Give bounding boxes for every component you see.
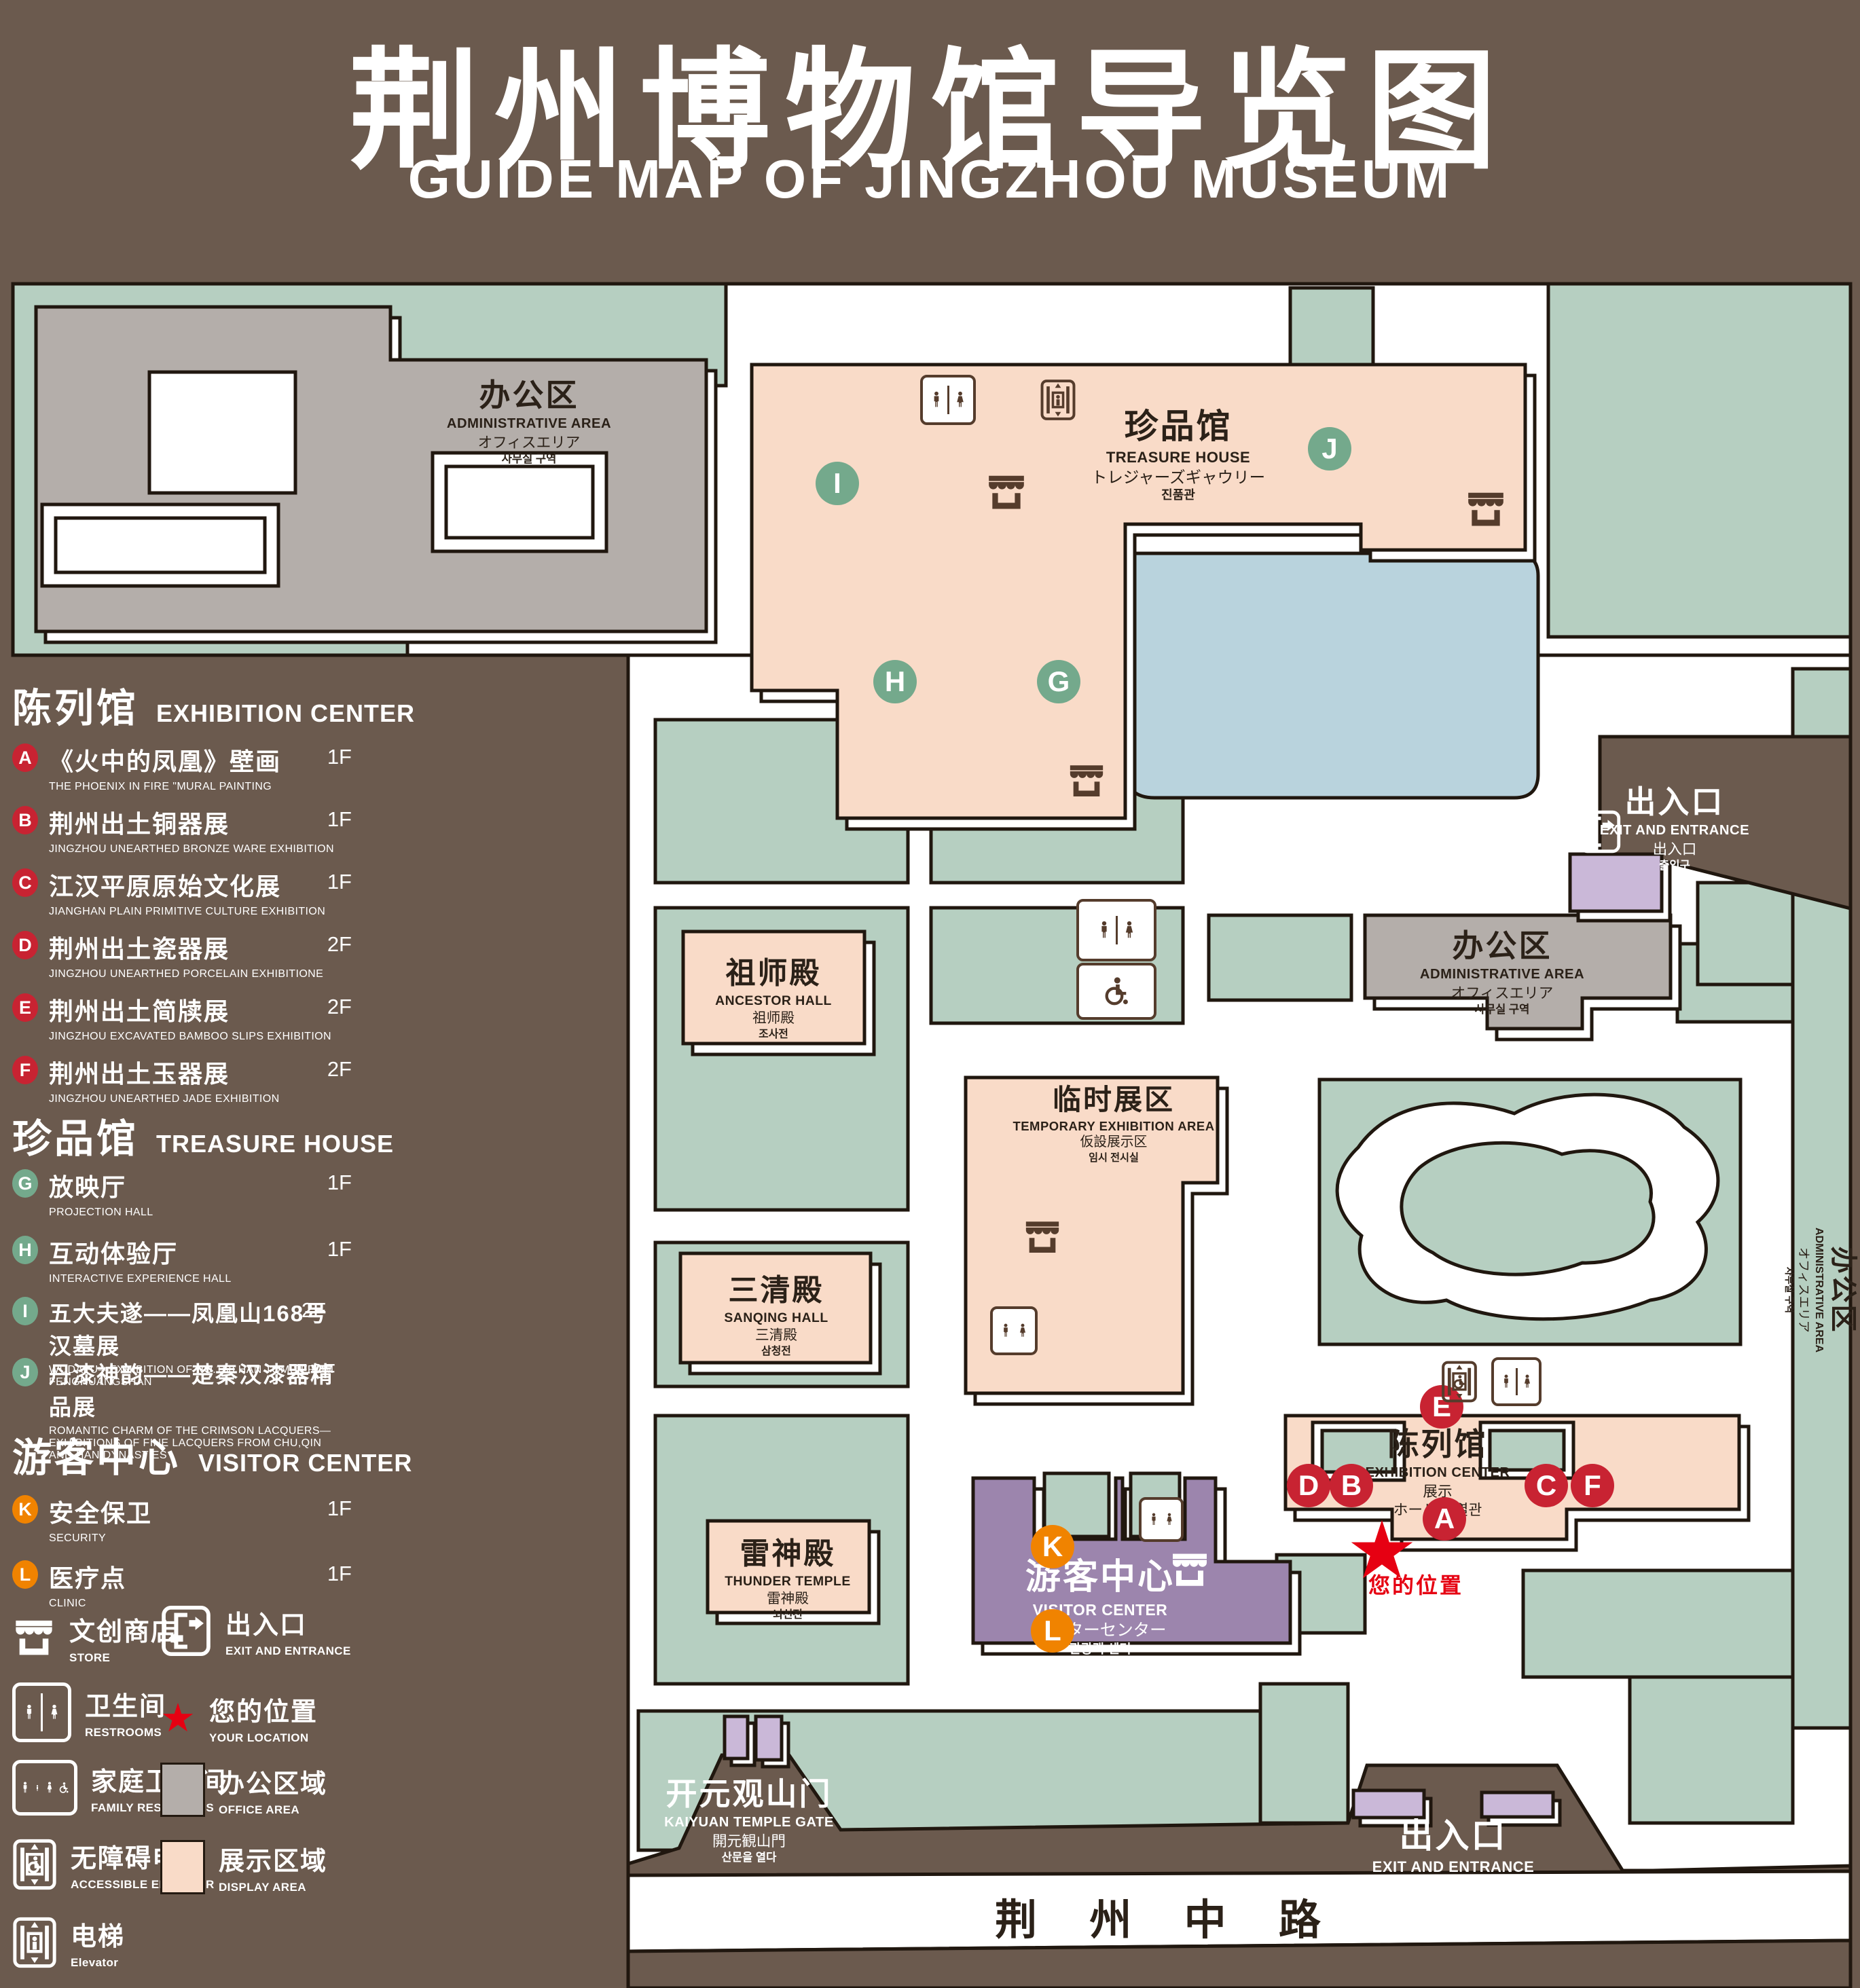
legend-symbol-restrooms: 卫生间 RESTROOMS — [12, 1682, 166, 1742]
woman-icon — [1163, 1505, 1176, 1534]
elevator-icon — [1040, 379, 1076, 421]
man-icon — [998, 1315, 1013, 1346]
accessible-elevator-icon — [12, 1837, 57, 1892]
man-icon — [1147, 1505, 1161, 1534]
legend-symbol-elevator: 电梯 Elevator — [12, 1915, 125, 1970]
map-badge-j: J — [1308, 427, 1351, 471]
label-thunder-temple: 雷神殿 THUNDER TEMPLE 雷神殿 뇌신전 — [725, 1535, 851, 1622]
store-icon — [985, 471, 1027, 513]
legend-item-g: G 放映厅 PROJECTION HALL 1F — [12, 1168, 352, 1219]
store-icon — [1169, 1549, 1210, 1590]
divider — [1516, 1368, 1518, 1395]
map-badge-l: L — [1031, 1609, 1074, 1653]
restrooms-icon — [12, 1682, 71, 1742]
restrooms-icon — [1076, 899, 1156, 961]
garden-island — [1402, 1143, 1654, 1274]
label-treasure-house: 珍品馆 TREASURE HOUSE トレジャーズギャウリー 진품관 — [1091, 405, 1265, 503]
your-location-label: 您的位置 — [1368, 1568, 1463, 1600]
label-admin-nw: 办公区 ADMINISTRATIVE AREA オフィスエリア 사무실 구역 — [447, 375, 611, 466]
map-badge-h: H — [873, 660, 917, 703]
restrooms-icon — [1491, 1357, 1542, 1406]
legend-item-l: L 医疗点 CLINIC 1F — [12, 1559, 352, 1610]
child-icon — [33, 1773, 42, 1803]
woman-icon — [46, 1691, 62, 1733]
map-badge-c: C — [1525, 1464, 1568, 1507]
legend-item-k: K 安全保卫 SECURITY 1F — [12, 1494, 352, 1545]
map-badge-i: I — [816, 462, 859, 505]
legend-item-c: C 江汉平原原始文化展 JIANGHAN PLAIN PRIMITIVE CUL… — [12, 867, 352, 918]
legend-item-f: F 荆州出土玉器展 JINGZHOU UNEARTHED JADE EXHIBI… — [12, 1054, 352, 1105]
label-kaiyuan-gate: 开元观山门 KAIYUAN TEMPLE GATE 開元観山門 산문을 열다 — [664, 1774, 834, 1865]
accessible-elevator-icon — [1441, 1360, 1478, 1403]
elevator-icon — [12, 1915, 57, 1970]
lawn-treasure-notch — [1290, 288, 1373, 369]
store-icon — [1067, 761, 1106, 800]
label-exit-east: 出入口 EXIT AND ENTRANCE 出入口 출입구 — [1600, 782, 1749, 873]
label-admin-right-strip: 办公区 ADMINISTRATIVE AREA オフィスエリア 사무실 구역 — [1783, 1228, 1860, 1352]
exit-icon — [1578, 810, 1622, 853]
location-star-icon: ★ — [160, 1698, 196, 1737]
legend-section-exhibition-center: 陈列馆 EXHIBITION CENTER — [12, 676, 415, 733]
legend-item-h: H 互动体验厅 INTERACTIVE EXPERIENCE HALL 1F — [12, 1234, 352, 1285]
building-south-gatehouse-2 — [1482, 1792, 1553, 1817]
legend-symbol-store: 文创商店 STORE — [12, 1610, 178, 1665]
display-area-swatch — [160, 1840, 205, 1894]
restrooms-icon — [990, 1306, 1038, 1355]
building-south-gatehouse-1 — [1353, 1790, 1424, 1818]
woman-icon — [43, 1769, 56, 1807]
exit-icon — [160, 1604, 212, 1658]
legend-symbol-location: ★ 您的位置 YOUR LOCATION — [160, 1691, 318, 1745]
wheelchair-icon — [1099, 974, 1134, 1009]
map-badge-b: B — [1330, 1464, 1373, 1507]
woman-icon — [951, 383, 969, 417]
office-area-swatch — [160, 1763, 205, 1817]
man-icon — [21, 1691, 37, 1733]
legend-item-a: A 《火中的凤凰》壁画 THE PHOENIX IN FIRE "MURAL P… — [12, 742, 352, 793]
gate-pillar-2 — [756, 1716, 782, 1760]
man-icon — [928, 383, 945, 417]
gate-pillar-1 — [725, 1716, 748, 1759]
restrooms-icon — [920, 375, 976, 425]
label-ancestor-hall: 祖师殿 ANCESTOR HALL 祖师殿 조사전 — [715, 955, 832, 1042]
legend-item-b: B 荆州出土铜器展 JINGZHOU UNEARTHED BRONZE WARE… — [12, 805, 352, 855]
woman-icon — [1015, 1315, 1030, 1346]
divider — [1116, 916, 1118, 944]
label-road: 荆 州 中 路 — [995, 1885, 1341, 1947]
guide-map-poster: 荆州博物馆导览图 GUIDE MAP OF JINGZHOU MUSEUM — [0, 0, 1860, 1988]
legend-item-e: E 荆州出土简牍展 JINGZHOU EXCAVATED BAMBOO SLIP… — [12, 992, 352, 1043]
lawn-northeast — [1548, 284, 1850, 637]
family-restrooms-icon — [1076, 963, 1156, 1020]
restrooms-icon — [1139, 1497, 1184, 1542]
legend-symbol-display-area: 展示区域 DISPLAY AREA — [160, 1840, 327, 1894]
wheelchair-icon — [57, 1773, 71, 1803]
store-icon — [1023, 1217, 1062, 1257]
map-badge-k: K — [1031, 1525, 1074, 1568]
label-temporary-area: 临时展区 TEMPORARY EXHIBITION AREA 仮設展示区 임시 … — [1013, 1082, 1214, 1164]
label-sanqing-hall: 三清殿 SANQING HALL 三清殿 삼청전 — [724, 1272, 828, 1359]
divider — [41, 1693, 43, 1731]
legend-section-visitor-center: 游客中心 VISITOR CENTER — [12, 1426, 412, 1483]
legend-symbol-office-area: 办公区域 OFFICE AREA — [160, 1763, 327, 1817]
map-badge-g: G — [1037, 660, 1080, 703]
label-exit-south: 出入口 EXIT AND ENTRANCE 出入口 출입구 — [1372, 1814, 1535, 1913]
store-icon — [12, 1616, 56, 1659]
map-badge-a: A — [1423, 1497, 1466, 1541]
divider — [947, 386, 949, 414]
man-icon — [1499, 1366, 1514, 1397]
pond — [1125, 553, 1538, 798]
family-restrooms-icon — [12, 1760, 77, 1816]
store-icon — [1465, 488, 1507, 530]
woman-icon — [1520, 1366, 1535, 1397]
woman-icon — [1120, 911, 1139, 949]
legend-section-treasure-house: 珍品馆 TREASURE HOUSE — [12, 1107, 394, 1164]
man-icon — [19, 1769, 31, 1807]
legend-symbol-exit: 出入口 EXIT AND ENTRANCE — [160, 1604, 351, 1658]
map-badge-d: D — [1287, 1464, 1330, 1507]
label-admin-east: 办公区 ADMINISTRATIVE AREA オフィスエリア 사무실 구역 — [1420, 926, 1584, 1017]
legend-item-d: D 荆州出土瓷器展 JINGZHOU UNEARTHED PORCELAIN E… — [12, 929, 352, 980]
map-badge-f: F — [1571, 1464, 1614, 1507]
man-icon — [1095, 911, 1114, 949]
